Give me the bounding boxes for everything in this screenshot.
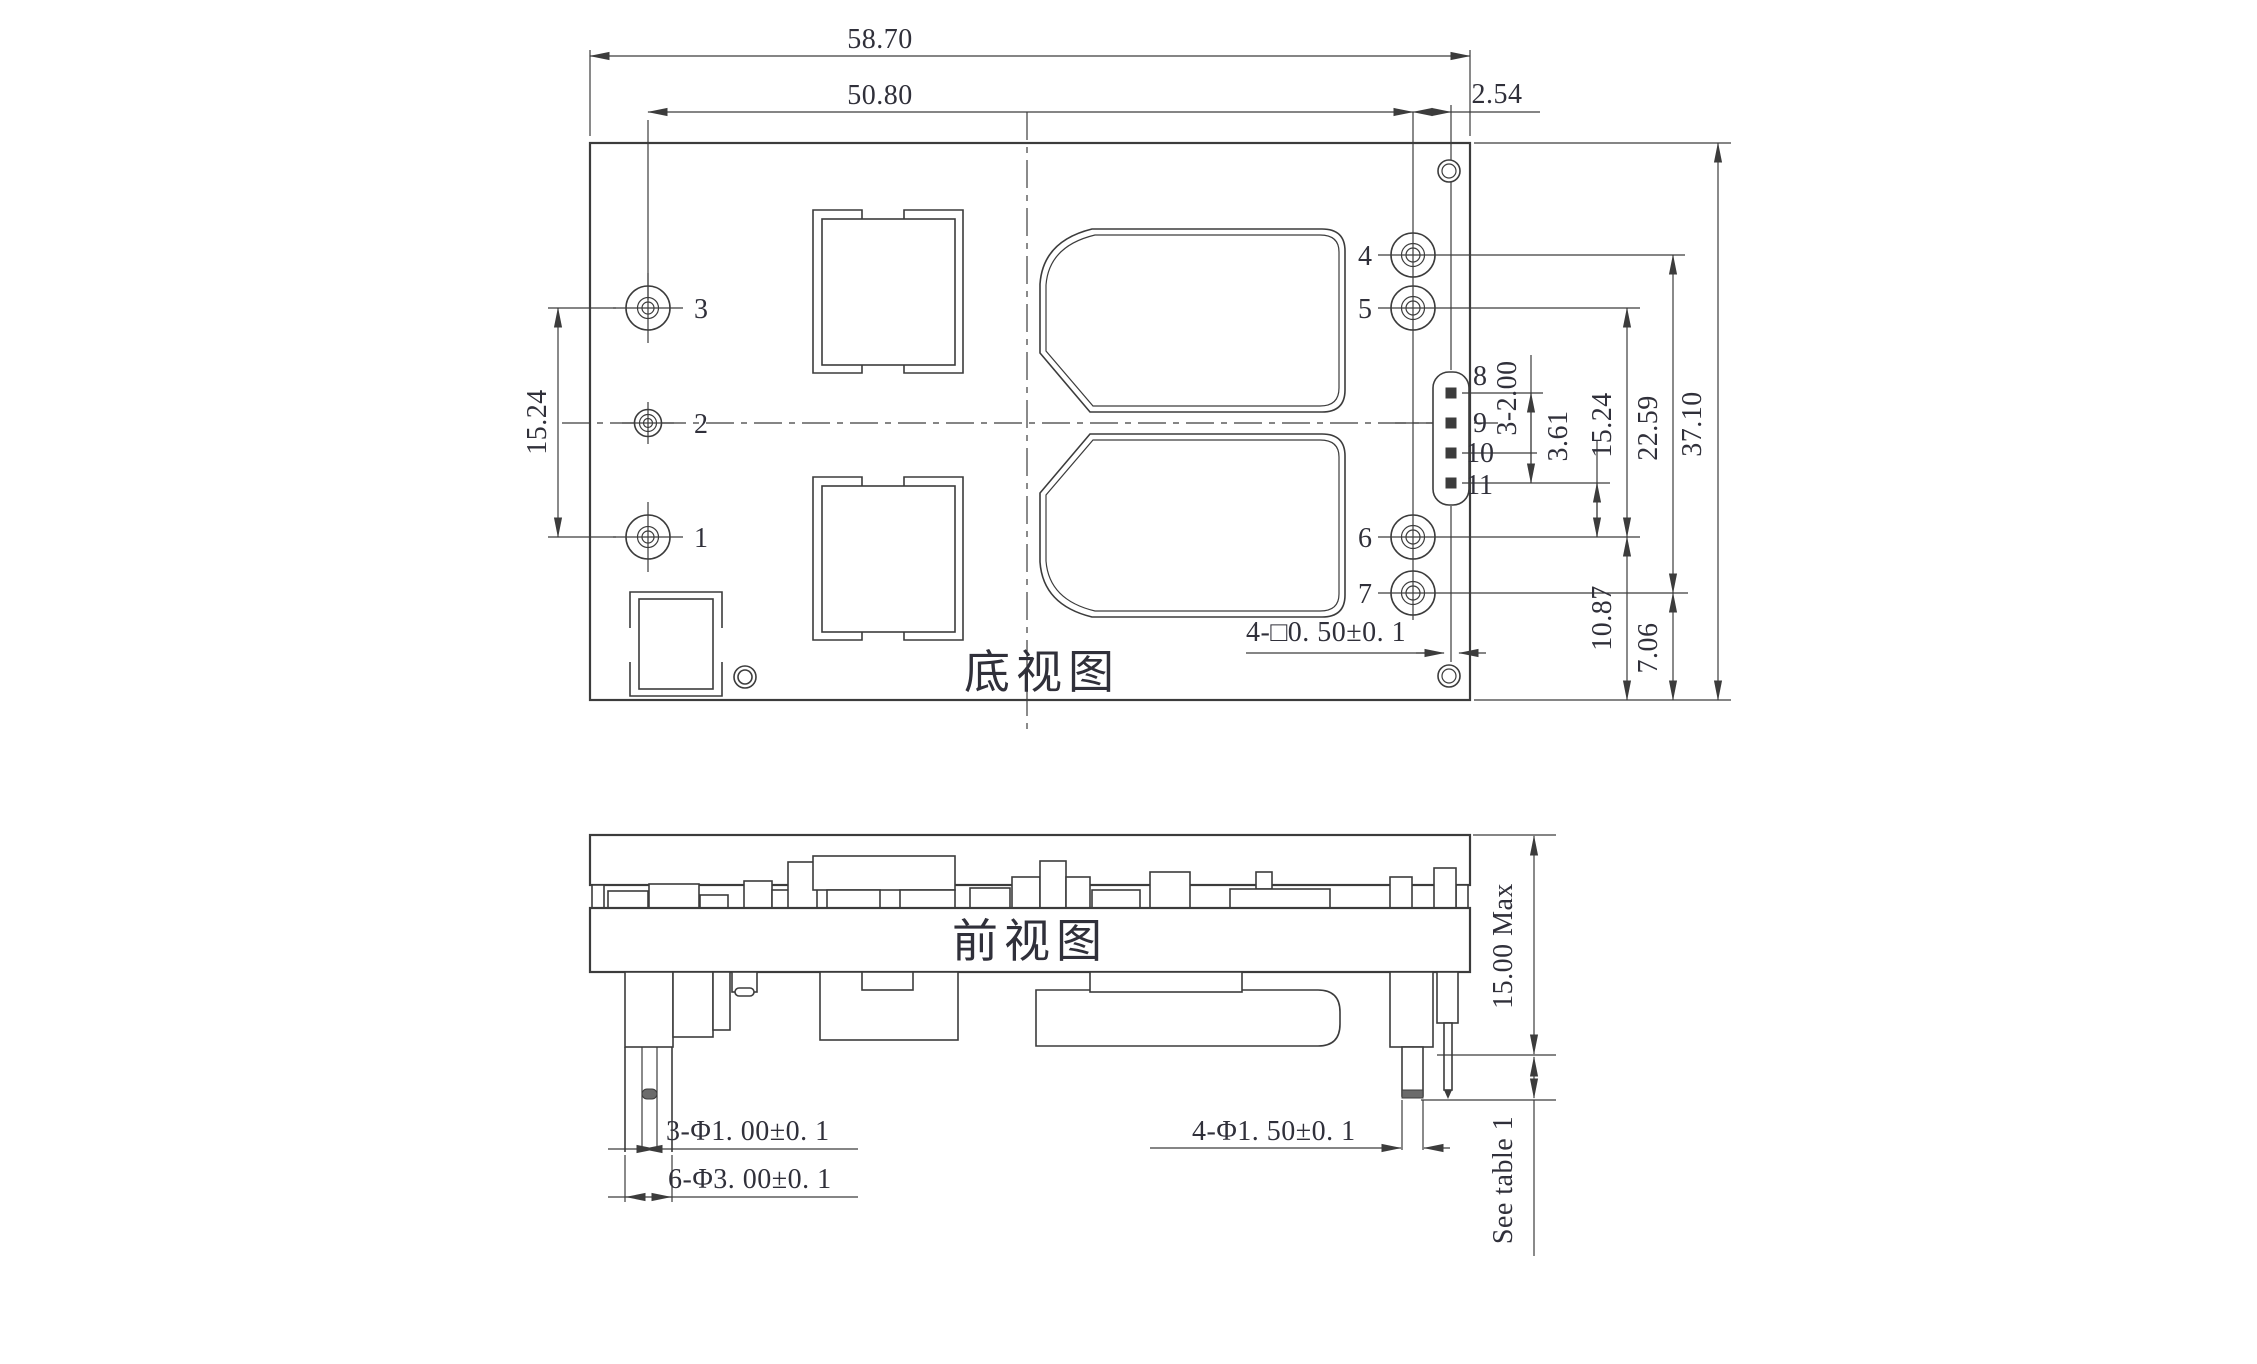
- input-pin: [625, 1047, 672, 1202]
- pin-tip-cap: [642, 1089, 657, 1099]
- transformer-footprint-1: [813, 210, 963, 373]
- component: [608, 891, 648, 908]
- dim-max-height: 15.00 Max: [1488, 883, 1519, 1009]
- dim-input-pin-dia: 3-Φ1. 00±0. 1: [666, 1116, 830, 1147]
- component: [827, 890, 880, 908]
- component: [900, 890, 955, 908]
- transformer-inner: [822, 486, 955, 632]
- component: [862, 972, 913, 990]
- component: [735, 988, 754, 996]
- mechanical-drawing: 3 2 1 4 5 6 7: [0, 0, 2257, 1364]
- component: [673, 972, 713, 1037]
- bottom-view-title: 底视图: [964, 647, 1120, 698]
- component: [1066, 877, 1090, 908]
- output-pin: [1402, 1047, 1423, 1150]
- note-square-pin: 4-□0. 50±0. 1: [1246, 617, 1406, 648]
- signal-pin: [1444, 1023, 1452, 1099]
- front-view-title: 前视图: [952, 916, 1108, 967]
- dim-left-pin-span: 15.24: [522, 389, 553, 455]
- ext-lines: [590, 50, 1470, 136]
- pin-5-label: 5: [1358, 294, 1372, 325]
- component: [744, 881, 772, 908]
- component: [1256, 872, 1272, 889]
- dim-overall-height: 37.10: [1677, 391, 1708, 457]
- needle-tip: [1444, 1090, 1452, 1099]
- pin-11-label: 11: [1466, 470, 1493, 501]
- component: [813, 856, 955, 890]
- mounting-hole-top-inner: [1442, 164, 1456, 178]
- pin-10-label: 10: [1466, 438, 1494, 469]
- signal-pin-base: [1437, 972, 1458, 1023]
- component: [1092, 890, 1140, 908]
- component: [1012, 877, 1040, 908]
- bottom-components: [625, 972, 1458, 1047]
- via-hole-inner: [738, 670, 752, 684]
- right-support: [1456, 885, 1468, 908]
- mounting-hole-bottom-inner: [1442, 669, 1456, 683]
- dim-signal-pitch: 3-2.00: [1492, 360, 1523, 435]
- transformer-footprint-2: [813, 477, 963, 640]
- component: [1230, 889, 1330, 908]
- shield-can-2: [1040, 434, 1345, 617]
- pin-10-pad: [1446, 448, 1457, 459]
- pin-2-label: 2: [694, 409, 708, 440]
- component: [649, 884, 699, 908]
- pin-11-pad: [1446, 478, 1457, 489]
- component: [1150, 872, 1190, 908]
- dim-pin7-to-edge: 7.06: [1633, 623, 1664, 674]
- pin-4-label: 4: [1358, 241, 1372, 272]
- bottom-view: 3 2 1 4 5 6 7: [522, 24, 1731, 733]
- ext-lines: [1402, 1100, 1423, 1150]
- drawing-sheet: 3 2 1 4 5 6 7: [0, 0, 2257, 1364]
- shield-can-outer: [1040, 229, 1345, 412]
- pin-7-label: 7: [1358, 579, 1372, 610]
- shield-can-outer: [1040, 434, 1345, 617]
- dim-pin6-to-edge: 10.87: [1587, 585, 1618, 651]
- component: [970, 888, 1010, 908]
- pin-8-pad: [1446, 388, 1457, 399]
- component: [1390, 877, 1412, 908]
- pin-tip: [1402, 1090, 1423, 1098]
- needle-body: [1444, 1023, 1452, 1090]
- component: [1040, 861, 1066, 908]
- dim-pin5-to-pin6: 15.24: [1587, 392, 1618, 458]
- pin-9-label: 9: [1473, 408, 1487, 439]
- ext-lines: [625, 1155, 672, 1202]
- component: [625, 972, 673, 1047]
- left-support: [592, 885, 604, 908]
- component: [1434, 868, 1456, 908]
- pin-9-pad: [1446, 418, 1457, 429]
- component: [700, 895, 728, 908]
- dim-pin4-to-pin7: 22.59: [1633, 395, 1664, 461]
- dim-pin-span-width: 50.80: [847, 80, 913, 111]
- dim-sig-to-pin6: 3.61: [1543, 411, 1574, 462]
- dim-output-pin-dia: 4-Φ1. 50±0. 1: [1192, 1116, 1356, 1147]
- component: [1090, 972, 1242, 992]
- component: [713, 972, 730, 1030]
- dim-standoff-dia: 6-Φ3. 00±0. 1: [668, 1164, 832, 1195]
- output-pin-base: [1390, 972, 1433, 1047]
- component-footprint: [630, 592, 722, 696]
- pin-3-label: 3: [694, 294, 708, 325]
- dim-signal-offset: 2.54: [1472, 79, 1523, 110]
- pin-body: [1402, 1047, 1423, 1096]
- dim-pin-length-note: See table 1: [1488, 1116, 1519, 1244]
- pin-8-label: 8: [1473, 361, 1487, 392]
- shield-can-1: [1040, 229, 1345, 412]
- component-inner: [639, 599, 713, 689]
- pin-1-label: 1: [694, 523, 708, 554]
- transformer-inner: [822, 219, 955, 365]
- dim-overall-width: 58.70: [847, 24, 913, 55]
- pin-6-label: 6: [1358, 523, 1372, 554]
- shield-can-side: [1036, 990, 1340, 1046]
- front-view: 前视图: [590, 835, 1556, 1256]
